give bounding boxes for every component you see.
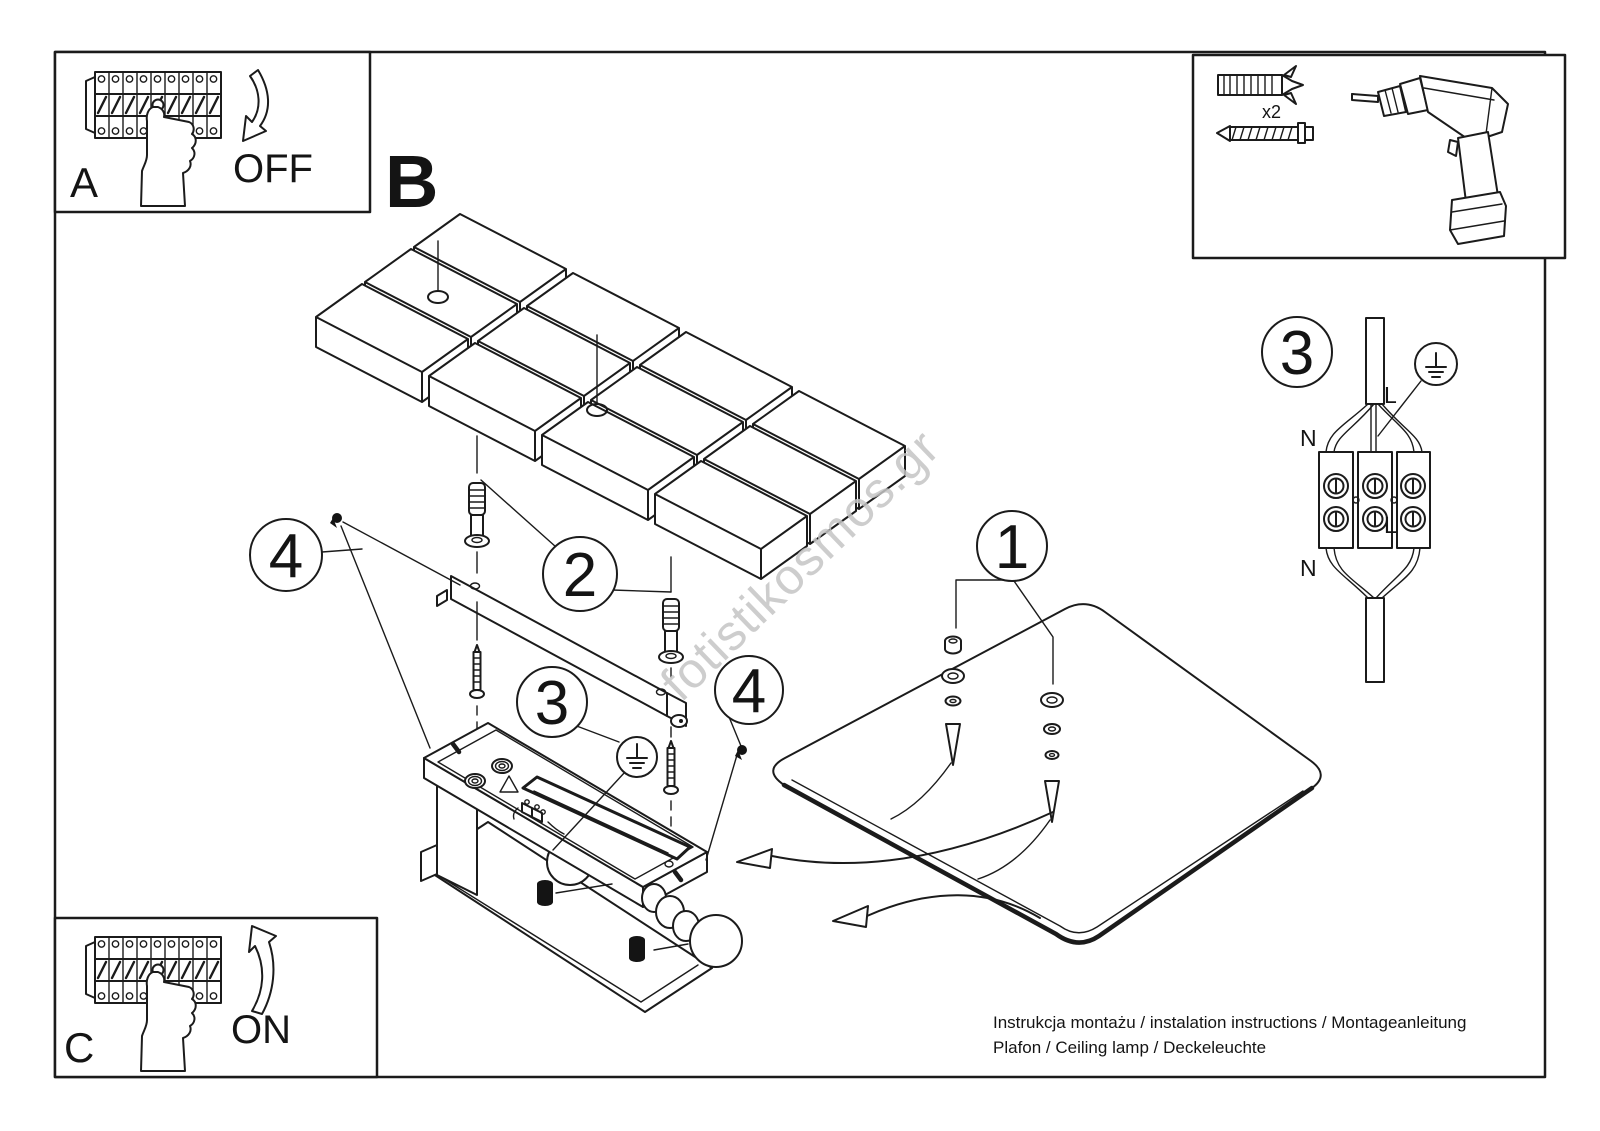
footer-line2: Plafon / Ceiling lamp / Deckeleuchte [993, 1038, 1266, 1057]
tools-box: x2 [1193, 55, 1565, 258]
step-a-label: A [70, 159, 98, 206]
step-a-panel: OFF A [55, 52, 370, 212]
wire-label-n-bottom: N [1300, 555, 1317, 581]
callout-number: 2 [563, 541, 597, 610]
wire-label-l-bottom: L [1384, 512, 1397, 538]
callout-4-right: 4 [706, 656, 783, 860]
screw-icon [1217, 123, 1313, 143]
lamp-assembly [421, 723, 742, 1012]
on-label: ON [231, 1008, 291, 1052]
glass-diffuser [773, 604, 1321, 942]
step-c-label: C [64, 1024, 94, 1071]
wire-label-l-top: L [1384, 382, 1397, 408]
footer-line1: Instrukcja montażu / instalation instruc… [993, 1013, 1466, 1032]
off-label: OFF [233, 147, 313, 191]
footer-text: Instrukcja montażu / instalation instruc… [993, 1013, 1466, 1057]
wall-plug-column-left [465, 436, 489, 573]
terminal-block [1319, 452, 1430, 548]
spacer-post [537, 880, 553, 906]
diagram-canvas: 4 2 3 4 1 3 [0, 0, 1600, 1131]
arrow-head-icon [737, 849, 772, 868]
step-b-label: B [385, 140, 438, 223]
callout-number: 1 [995, 513, 1029, 582]
step-c-panel: ON C [55, 918, 377, 1077]
wall-plug-qty-label: x2 [1262, 102, 1281, 122]
light-bulb-icon [690, 915, 742, 967]
callout-number: 4 [732, 657, 766, 726]
callout-number: 4 [269, 522, 303, 591]
callout-4-left: 4 [250, 513, 460, 748]
callout-number: 3 [535, 669, 569, 738]
bracket-screw-left [470, 602, 484, 730]
wiring-diagram: 3 N L N [1262, 317, 1457, 682]
instruction-sheet: 4 2 3 4 1 3 [0, 0, 1600, 1131]
spacer-post [629, 936, 645, 962]
callout-number: 3 [1280, 319, 1314, 388]
wire-label-n-top: N [1300, 425, 1317, 451]
arrow-head-icon [833, 906, 868, 927]
